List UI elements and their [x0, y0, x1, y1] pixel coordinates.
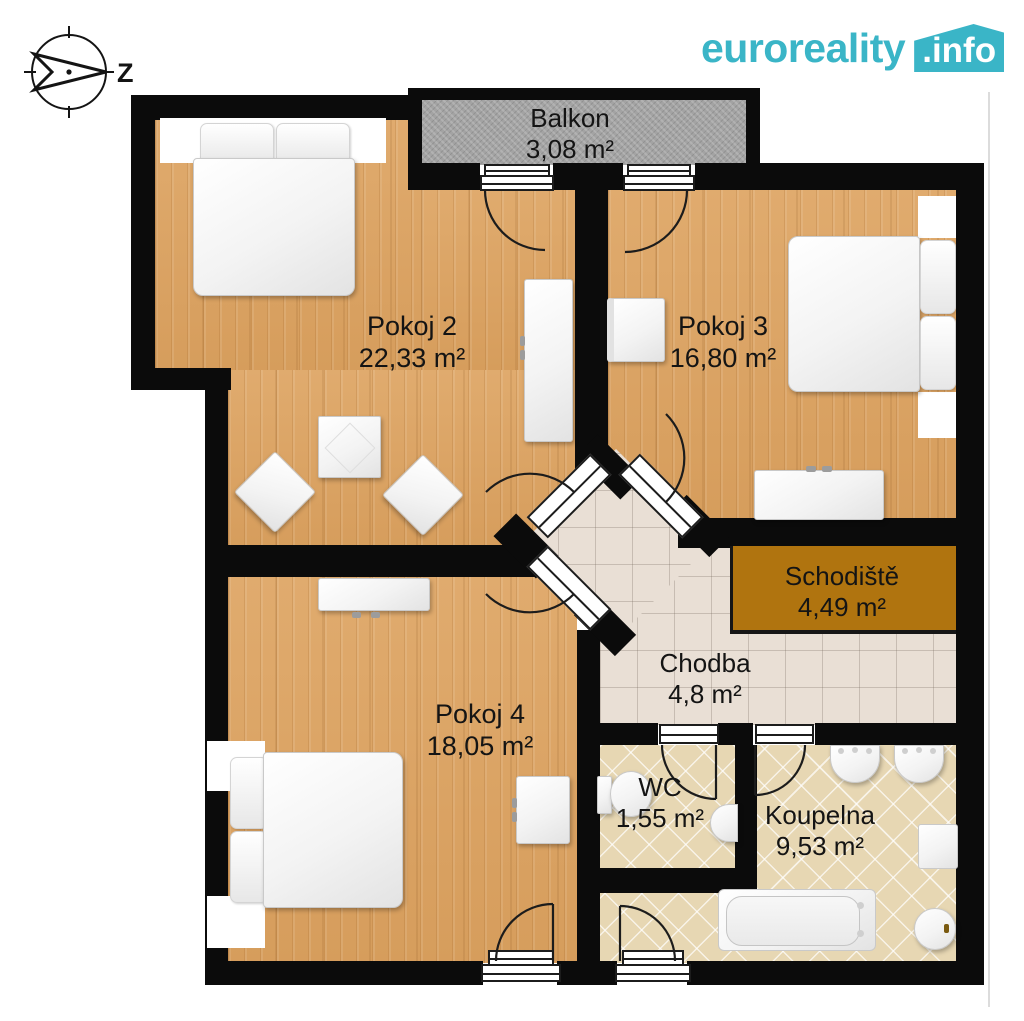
wall	[687, 961, 984, 985]
room-area: 1,55 m²	[600, 803, 720, 834]
room-label-schodiste: Schodiště 4,49 m²	[757, 561, 927, 623]
compass-direction-label: Z	[117, 58, 134, 88]
faucet-dot	[866, 748, 872, 754]
desk-handle	[371, 612, 380, 618]
wall	[718, 723, 753, 745]
room-area: 16,80 m²	[633, 342, 813, 374]
door-sill-balcony-pokoj3	[623, 175, 695, 191]
bathtub-faucet	[857, 902, 864, 909]
room-label-wc: WC 1,55 m²	[600, 772, 720, 834]
room-label-balkon: Balkon 3,08 m²	[470, 103, 670, 165]
wardrobe-handle	[520, 350, 525, 360]
wall	[553, 163, 623, 190]
wall	[205, 545, 540, 577]
faucet-dot	[902, 748, 908, 754]
table	[318, 416, 381, 478]
door-sill-wc	[659, 724, 719, 744]
room-label-pokoj2: Pokoj 2 22,33 m²	[322, 310, 502, 375]
washing-machine-mark	[944, 924, 949, 933]
double-bed	[263, 752, 403, 908]
wall	[131, 95, 421, 120]
room-area: 3,08 m²	[470, 134, 670, 165]
wardrobe	[516, 776, 570, 844]
room-name: Schodiště	[757, 561, 927, 592]
room-area: 9,53 m²	[735, 831, 905, 862]
door-sill-koupelna-south	[615, 964, 691, 982]
bathtub-faucet	[857, 930, 864, 937]
washing-machine	[914, 908, 956, 950]
brand-logo: euroreality .info	[701, 24, 1004, 72]
wardrobe	[524, 279, 573, 442]
room-label-pokoj3: Pokoj 3 16,80 m²	[633, 310, 813, 375]
wall	[575, 188, 608, 470]
wall	[408, 88, 760, 100]
room-name: Pokoj 4	[390, 698, 570, 730]
room-area: 4,8 m²	[620, 679, 790, 710]
pillow	[920, 240, 956, 314]
wall	[956, 163, 984, 985]
room-area: 4,49 m²	[757, 592, 927, 623]
wall	[408, 163, 480, 190]
wall	[205, 368, 228, 985]
bathtub-basin	[726, 896, 860, 946]
dresser	[754, 470, 884, 520]
brand-logo-tld: .info	[922, 33, 996, 72]
window	[918, 392, 956, 438]
dresser-handle	[822, 466, 832, 472]
room-label-koupelna: Koupelna 9,53 m²	[735, 800, 905, 862]
table-decor	[325, 423, 376, 474]
desk-handle	[352, 612, 361, 618]
faucet-dot	[838, 748, 844, 754]
room-label-chodba: Chodba 4,8 m²	[620, 648, 790, 710]
room-area: 18,05 m²	[390, 730, 570, 762]
bathtub	[718, 889, 876, 951]
compass-icon: Z	[14, 14, 154, 134]
desk	[318, 578, 430, 611]
wall	[205, 961, 483, 985]
dresser-handle	[806, 466, 816, 472]
wall	[815, 723, 958, 745]
room-name: Balkon	[470, 103, 670, 134]
faucet-dot	[852, 747, 858, 753]
pillow	[920, 316, 956, 390]
room-name: Pokoj 2	[322, 310, 502, 342]
wall	[746, 88, 760, 165]
door-sill-pokoj4-south	[481, 964, 561, 982]
faucet-dot	[916, 747, 922, 753]
window	[207, 896, 265, 948]
image-edge-line	[988, 92, 990, 1007]
wall	[131, 95, 155, 390]
brand-logo-text: euroreality	[701, 25, 905, 72]
wardrobe-handle	[512, 812, 517, 822]
wardrobe-handle	[512, 798, 517, 808]
brand-logo-house-badge: .info	[914, 24, 1004, 72]
faucet-dot	[930, 748, 936, 754]
room-name: Pokoj 3	[633, 310, 813, 342]
wall	[695, 163, 958, 190]
room-area: 22,33 m²	[322, 342, 502, 374]
double-bed	[193, 158, 355, 296]
window	[918, 196, 956, 238]
door-sill-balcony-pokoj2	[480, 175, 554, 191]
room-name: Koupelna	[735, 800, 905, 831]
room-name: WC	[600, 772, 720, 803]
room-label-pokoj4: Pokoj 4 18,05 m²	[390, 698, 570, 763]
room-name: Chodba	[620, 648, 790, 679]
cabinet	[918, 824, 958, 869]
wardrobe-handle	[520, 336, 525, 346]
door-sill-koupelna	[755, 724, 814, 744]
